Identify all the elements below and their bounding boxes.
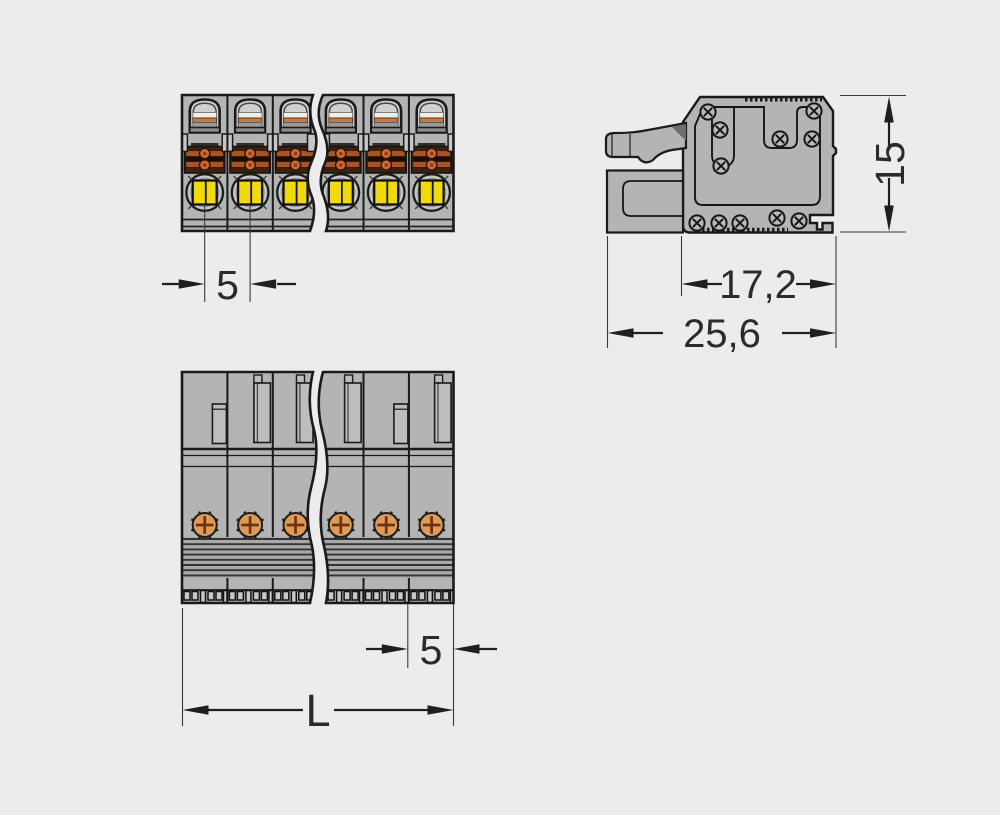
front-view: [182, 95, 454, 231]
latch-channel: [254, 375, 271, 443]
side-depth-total-label: 25,6: [683, 312, 761, 356]
side-plug-shroud: [607, 171, 683, 233]
front-pole: [366, 100, 406, 211]
latch-channel: [394, 404, 408, 444]
front-pole: [185, 100, 225, 211]
side-height-label: 15: [867, 141, 913, 187]
side-view: [606, 97, 836, 233]
front-pitch-label: 5: [216, 262, 239, 308]
latch-channel: [212, 404, 226, 444]
technical-drawing: 5 15: [0, 0, 1000, 815]
dimension-side-height: 15: [840, 96, 913, 233]
bottom-view: [180, 372, 455, 603]
latch-channel: [345, 375, 362, 443]
side-depth-inner-label: 17,2: [719, 263, 797, 307]
front-pole: [230, 100, 270, 211]
bottom-pitch-label: 5: [420, 627, 443, 673]
front-pole: [412, 100, 452, 211]
dimension-bottom-length: L: [183, 608, 454, 736]
latch-channel: [435, 375, 452, 443]
bottom-length-label: L: [305, 685, 330, 736]
